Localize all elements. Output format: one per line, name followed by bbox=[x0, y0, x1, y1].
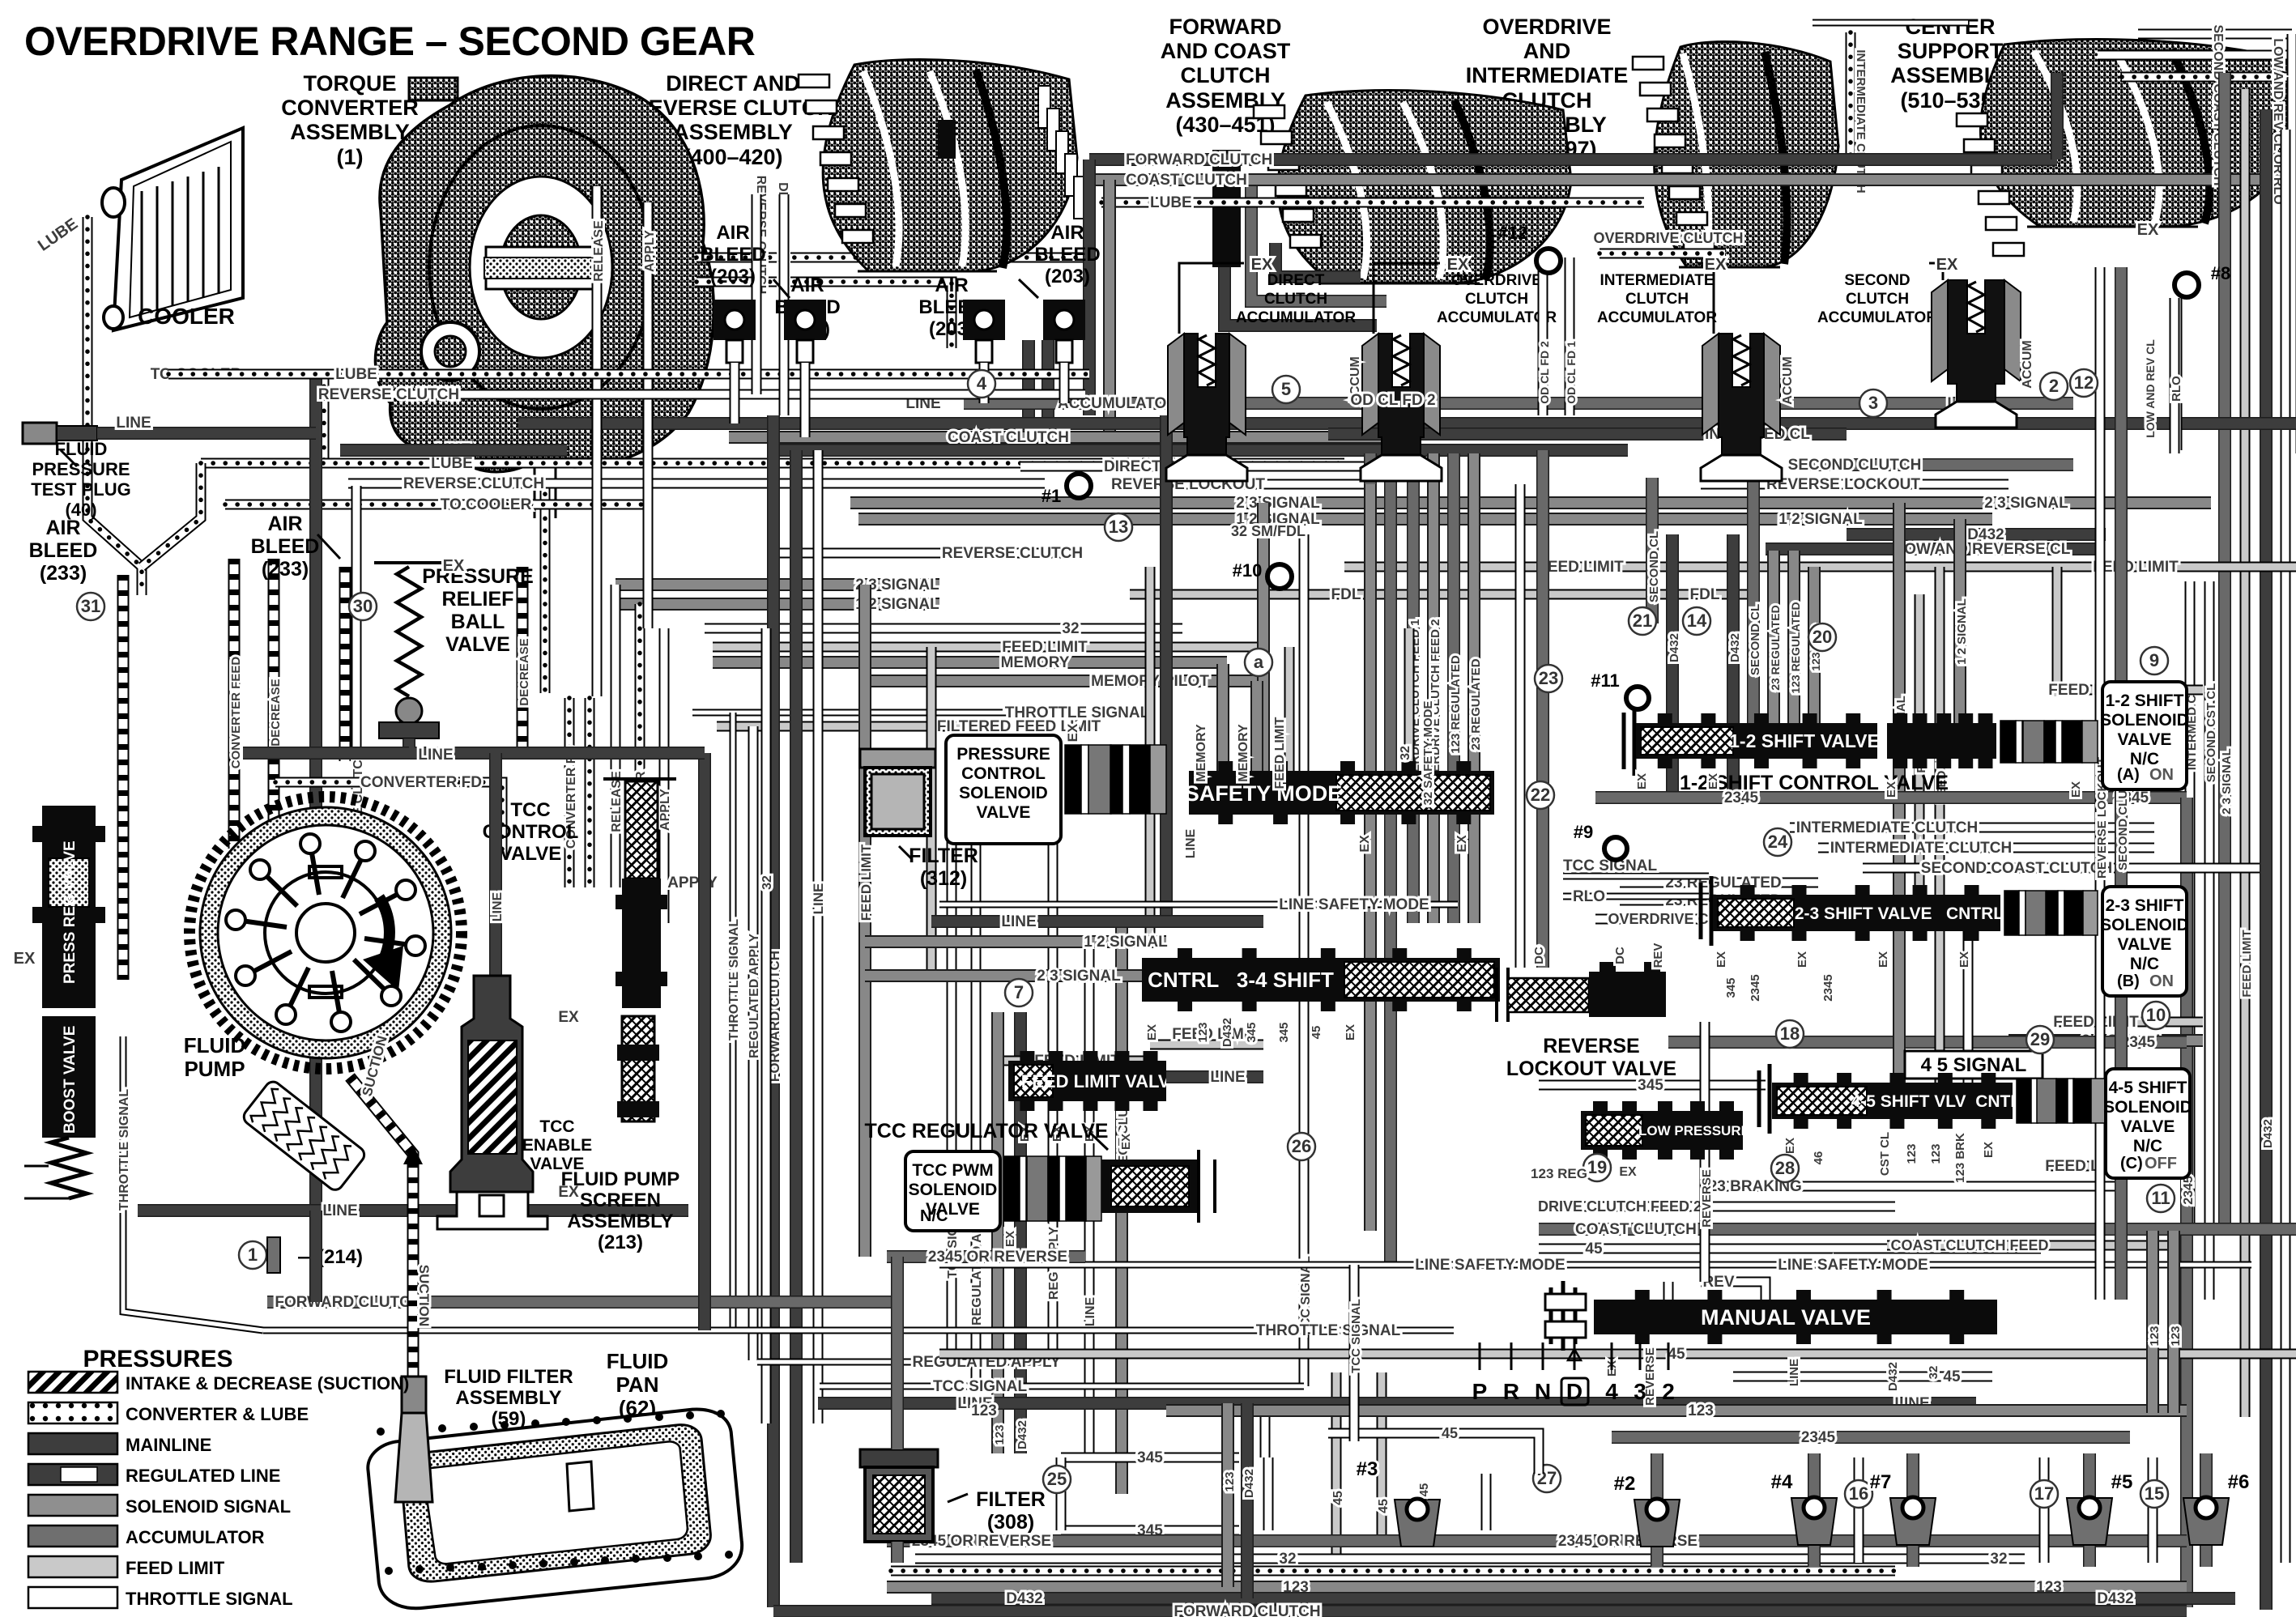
svg-text:123 REGULATED: 123 REGULATED bbox=[1449, 655, 1463, 754]
svg-text:18: 18 bbox=[1780, 1023, 1800, 1044]
svg-text:OVERDRIVE CLUTCH: OVERDRIVE CLUTCH bbox=[1593, 230, 1743, 246]
svg-text:EX: EX bbox=[1065, 723, 1080, 742]
svg-text:THROTTLE SIGNAL: THROTTLE SIGNAL bbox=[117, 1089, 131, 1211]
svg-text:(1): (1) bbox=[337, 145, 364, 169]
svg-text:FEED LIMIT: FEED LIMIT bbox=[1538, 559, 1624, 576]
svg-text:OVERDRIVE: OVERDRIVE bbox=[1482, 15, 1611, 39]
svg-text:VALVE: VALVE bbox=[2121, 1117, 2175, 1136]
svg-text:3: 3 bbox=[1634, 1379, 1646, 1404]
svg-text:EX: EX bbox=[2069, 781, 2083, 798]
svg-text:BLEED: BLEED bbox=[251, 535, 320, 558]
svg-text:EX: EX bbox=[1119, 1134, 1133, 1150]
svg-text:45: 45 bbox=[1417, 1483, 1431, 1497]
svg-text:30: 30 bbox=[353, 596, 373, 616]
svg-text:SECOND COAST CLUTCH: SECOND COAST CLUTCH bbox=[1921, 860, 2112, 877]
svg-text:32 SM/FDL: 32 SM/FDL bbox=[1231, 523, 1306, 539]
svg-text:EX: EX bbox=[1619, 1165, 1637, 1179]
svg-text:OD CL FD 1: OD CL FD 1 bbox=[1565, 341, 1578, 404]
svg-text:345: 345 bbox=[1724, 977, 1738, 998]
svg-text:FLUID: FLUID bbox=[607, 1349, 669, 1373]
svg-text:COAST CLUTCH: COAST CLUTCH bbox=[1126, 172, 1247, 189]
svg-text:FEED LIMIT VALVE: FEED LIMIT VALVE bbox=[1021, 1071, 1182, 1091]
svg-text:SUPPORT: SUPPORT bbox=[1898, 39, 2004, 63]
svg-text:TCC: TCC bbox=[510, 799, 550, 821]
svg-text:(B): (B) bbox=[2117, 972, 2140, 990]
svg-text:FORWARD CLUTCH: FORWARD CLUTCH bbox=[275, 1294, 421, 1311]
svg-text:DIRECT AND: DIRECT AND bbox=[666, 71, 800, 96]
svg-text:(312): (312) bbox=[920, 867, 967, 890]
svg-text:PRESSURE: PRESSURE bbox=[422, 565, 534, 588]
svg-text:BOOST VALVE: BOOST VALVE bbox=[62, 1026, 79, 1134]
svg-text:EX: EX bbox=[443, 557, 465, 575]
svg-text:FEED LIMIT: FEED LIMIT bbox=[126, 1558, 225, 1578]
svg-text:123: 123 bbox=[1688, 1402, 1714, 1419]
svg-text:(203): (203) bbox=[1045, 266, 1090, 287]
svg-text:5: 5 bbox=[1281, 379, 1291, 399]
svg-text:#8: #8 bbox=[2211, 263, 2230, 283]
svg-text:CONTROL: CONTROL bbox=[961, 764, 1046, 783]
svg-text:PRESSURE: PRESSURE bbox=[956, 745, 1050, 764]
svg-text:26: 26 bbox=[1292, 1136, 1311, 1156]
svg-text:SOLENOID: SOLENOID bbox=[2100, 711, 2189, 730]
svg-text:LINE: LINE bbox=[1184, 828, 1198, 858]
svg-text:OD CL FD 2: OD CL FD 2 bbox=[1350, 392, 1435, 409]
svg-text:45: 45 bbox=[1310, 1026, 1323, 1040]
svg-text:INTAKE & DECREASE (SUCTION): INTAKE & DECREASE (SUCTION) bbox=[126, 1373, 409, 1394]
svg-text:SOLENOID: SOLENOID bbox=[909, 1181, 998, 1199]
svg-text:EX: EX bbox=[558, 1009, 579, 1026]
svg-text:ACCUMULATOR: ACCUMULATOR bbox=[126, 1527, 265, 1547]
svg-text:#1: #1 bbox=[1042, 486, 1061, 506]
svg-text:EX: EX bbox=[1885, 781, 1898, 798]
svg-text:AIR: AIR bbox=[790, 274, 824, 296]
svg-text:INTERMEDIATE CLUTCH: INTERMEDIATE CLUTCH bbox=[1854, 49, 1868, 193]
svg-text:VALVE: VALVE bbox=[500, 843, 561, 865]
svg-text:LINE: LINE bbox=[491, 891, 505, 921]
svg-text:R: R bbox=[1503, 1379, 1519, 1404]
svg-text:TEST PLUG: TEST PLUG bbox=[31, 479, 130, 500]
svg-text:32: 32 bbox=[1279, 1551, 1296, 1568]
svg-text:13: 13 bbox=[1109, 517, 1128, 537]
svg-text:24: 24 bbox=[1768, 832, 1788, 852]
svg-text:D432: D432 bbox=[1016, 1420, 1029, 1449]
svg-text:DIRECT: DIRECT bbox=[1267, 272, 1325, 289]
svg-text:SOLENOID: SOLENOID bbox=[2103, 1098, 2192, 1117]
svg-text:32: 32 bbox=[760, 875, 774, 890]
svg-text:MAINLINE: MAINLINE bbox=[126, 1435, 211, 1455]
svg-text:OFF: OFF bbox=[2145, 1155, 2177, 1172]
svg-text:COAST CLUTCH: COAST CLUTCH bbox=[1575, 1221, 1697, 1238]
svg-text:#6: #6 bbox=[2228, 1471, 2250, 1493]
svg-text:FLUID PUMP: FLUID PUMP bbox=[561, 1168, 680, 1190]
svg-text:VALVE: VALVE bbox=[445, 633, 510, 656]
svg-text:45: 45 bbox=[1442, 1425, 1458, 1441]
svg-text:TCC SIGNAL: TCC SIGNAL bbox=[1349, 1299, 1363, 1373]
svg-text:D432: D432 bbox=[2097, 1590, 2133, 1607]
svg-text:LINE: LINE bbox=[1210, 1069, 1245, 1086]
svg-text:20: 20 bbox=[1813, 627, 1832, 647]
svg-text:SECOND CST CL: SECOND CST CL bbox=[2204, 683, 2218, 783]
svg-text:#10: #10 bbox=[1233, 560, 1263, 581]
svg-text:APPLY: APPLY bbox=[658, 789, 672, 831]
svg-text:4: 4 bbox=[977, 373, 987, 394]
svg-text:PAN: PAN bbox=[616, 1372, 659, 1397]
svg-text:2345: 2345 bbox=[1821, 974, 1835, 1001]
svg-text:ACCUMULATOR: ACCUMULATOR bbox=[1597, 309, 1717, 326]
svg-text:OVERDRIVE RANGE – SECOND GEAR: OVERDRIVE RANGE – SECOND GEAR bbox=[24, 19, 756, 64]
svg-text:(213): (213) bbox=[598, 1232, 643, 1253]
svg-text:(400–420): (400–420) bbox=[683, 145, 782, 169]
svg-text:EX: EX bbox=[1706, 773, 1720, 789]
svg-text:D432: D432 bbox=[1242, 1469, 1256, 1498]
svg-text:LINE: LINE bbox=[1787, 1359, 1801, 1386]
svg-text:FLUID FILTER: FLUID FILTER bbox=[444, 1366, 573, 1388]
svg-text:123 REG: 123 REG bbox=[1531, 1166, 1587, 1181]
svg-text:19: 19 bbox=[1587, 1157, 1607, 1177]
svg-text:2 3 SIGNAL: 2 3 SIGNAL bbox=[2220, 748, 2234, 815]
svg-text:ACCUMULATOR: ACCUMULATOR bbox=[1817, 309, 1937, 326]
svg-text:FDL: FDL bbox=[1690, 586, 1720, 603]
svg-text:2: 2 bbox=[2049, 376, 2059, 396]
svg-text:(C): (C) bbox=[2120, 1155, 2143, 1172]
svg-text:AIR: AIR bbox=[267, 513, 302, 535]
svg-text:2345: 2345 bbox=[1749, 974, 1762, 1001]
svg-text:123: 123 bbox=[1196, 1022, 1210, 1042]
svg-text:P: P bbox=[1472, 1379, 1488, 1404]
svg-text:CONVERTER FEED: CONVERTER FEED bbox=[229, 657, 243, 769]
svg-text:CONVERTER FD: CONVERTER FD bbox=[360, 774, 482, 791]
svg-text:ASSEMBLY: ASSEMBLY bbox=[455, 1387, 561, 1409]
svg-text:D432: D432 bbox=[1220, 1018, 1234, 1047]
svg-text:2345 OR REVERSE: 2345 OR REVERSE bbox=[928, 1249, 1067, 1266]
svg-text:RLO: RLO bbox=[2170, 376, 2183, 402]
svg-text:EX: EX bbox=[1957, 951, 1971, 968]
svg-text:LOW AND REVERSE CL: LOW AND REVERSE CL bbox=[1895, 541, 2071, 558]
svg-text:VALVE: VALVE bbox=[2118, 730, 2172, 749]
svg-text:TCC SIGNAL: TCC SIGNAL bbox=[933, 1378, 1028, 1395]
svg-text:EX: EX bbox=[2137, 221, 2159, 239]
svg-text:FEED LIMIT: FEED LIMIT bbox=[858, 844, 874, 921]
svg-text:15: 15 bbox=[2145, 1483, 2164, 1504]
svg-text:14: 14 bbox=[1687, 611, 1707, 631]
svg-text:SCREEN: SCREEN bbox=[580, 1189, 661, 1211]
svg-text:28: 28 bbox=[1775, 1158, 1795, 1178]
svg-text:SECOND: SECOND bbox=[1844, 272, 1910, 289]
svg-text:32: 32 bbox=[1062, 620, 1079, 637]
svg-text:2-3 SHIFT: 2-3 SHIFT bbox=[2106, 896, 2184, 915]
svg-text:COOLER: COOLER bbox=[138, 304, 235, 329]
svg-text:#5: #5 bbox=[2111, 1471, 2133, 1493]
svg-text:REGULATED APPLY: REGULATED APPLY bbox=[748, 934, 761, 1058]
svg-text:2 3 SIGNAL: 2 3 SIGNAL bbox=[1984, 495, 2068, 512]
svg-text:OVERDRIVE: OVERDRIVE bbox=[1451, 272, 1542, 289]
svg-text:ACCUM: ACCUM bbox=[2021, 340, 2034, 389]
svg-text:EX: EX bbox=[1783, 1138, 1797, 1154]
svg-text:2 3 SIGNAL: 2 3 SIGNAL bbox=[1037, 968, 1121, 985]
svg-text:CENTER: CENTER bbox=[1905, 15, 1995, 39]
svg-text:#9: #9 bbox=[1574, 822, 1593, 842]
svg-text:VALVE: VALVE bbox=[977, 803, 1031, 822]
svg-text:1 2 SIGNAL: 1 2 SIGNAL bbox=[1955, 598, 1969, 665]
svg-text:RELIEF: RELIEF bbox=[442, 588, 514, 611]
svg-text:DECREASE: DECREASE bbox=[518, 638, 531, 705]
svg-text:LUBE: LUBE bbox=[1150, 194, 1192, 211]
svg-text:4 5 SIGNAL: 4 5 SIGNAL bbox=[1921, 1054, 2027, 1076]
svg-text:2345 OR REVERSE: 2345 OR REVERSE bbox=[1558, 1533, 1698, 1550]
svg-text:FEED LIMIT: FEED LIMIT bbox=[1273, 717, 1287, 789]
svg-text:#3: #3 bbox=[1357, 1458, 1378, 1480]
svg-text:AIR: AIR bbox=[1050, 222, 1084, 244]
svg-text:FEED LIMIT: FEED LIMIT bbox=[2240, 930, 2254, 997]
svg-text:(A): (A) bbox=[2117, 766, 2140, 784]
svg-text:(233): (233) bbox=[40, 562, 87, 585]
svg-text:ENABLE: ENABLE bbox=[522, 1136, 592, 1155]
svg-text:RELEASE: RELEASE bbox=[592, 220, 606, 282]
svg-text:INTERMEDIATE: INTERMEDIATE bbox=[1600, 272, 1714, 289]
svg-text:N/C: N/C bbox=[920, 1207, 948, 1225]
svg-text:SUCTION: SUCTION bbox=[416, 1265, 432, 1327]
svg-text:EX: EX bbox=[1145, 1024, 1159, 1040]
svg-text:EX: EX bbox=[1876, 951, 1890, 968]
svg-text:45: 45 bbox=[1377, 1499, 1391, 1513]
svg-text:2: 2 bbox=[1662, 1379, 1675, 1404]
svg-text:LOCKOUT VALVE: LOCKOUT VALVE bbox=[1506, 1057, 1676, 1080]
svg-text:FORWARD: FORWARD bbox=[1169, 15, 1282, 39]
svg-text:SOLENOID: SOLENOID bbox=[2100, 916, 2189, 934]
svg-text:TO COOLER: TO COOLER bbox=[441, 496, 532, 513]
svg-text:1-2 SHIFT VALVE: 1-2 SHIFT VALVE bbox=[1729, 730, 1880, 751]
svg-text:CNTRL 3-4 SHIFT: CNTRL 3-4 SHIFT bbox=[1148, 968, 1334, 992]
svg-text:EX: EX bbox=[1936, 256, 1958, 274]
svg-text:CONVERTER & LUBE: CONVERTER & LUBE bbox=[126, 1404, 309, 1424]
svg-text:LOW PRESSURE: LOW PRESSURE bbox=[1638, 1123, 1750, 1138]
svg-text:FILTER: FILTER bbox=[909, 845, 978, 867]
svg-text:INTERMEDIATE: INTERMEDIATE bbox=[1466, 63, 1629, 87]
svg-text:123: 123 bbox=[2169, 1326, 2183, 1346]
svg-text:12: 12 bbox=[2074, 372, 2094, 393]
svg-text:CLUTCH: CLUTCH bbox=[1625, 291, 1689, 308]
svg-text:REVERSE CLUTCH: REVERSE CLUTCH bbox=[942, 545, 1083, 562]
svg-text:FEED LIMIT: FEED LIMIT bbox=[2093, 559, 2179, 576]
svg-text:D432: D432 bbox=[1886, 1362, 1900, 1391]
svg-text:SECOND CL: SECOND CL bbox=[1749, 604, 1762, 675]
svg-text:AIR: AIR bbox=[716, 222, 749, 244]
svg-text:DECREASE: DECREASE bbox=[269, 679, 283, 746]
svg-text:FORWARD CLUTCH: FORWARD CLUTCH bbox=[1126, 151, 1272, 168]
svg-text:1 2 SIGNAL: 1 2 SIGNAL bbox=[1084, 934, 1168, 951]
svg-text:OD CL FD 2: OD CL FD 2 bbox=[1538, 341, 1551, 404]
svg-text:4: 4 bbox=[1605, 1379, 1618, 1404]
svg-text:LINE SAFETY MODE: LINE SAFETY MODE bbox=[1778, 1257, 1928, 1274]
svg-text:123: 123 bbox=[971, 1402, 997, 1419]
svg-text:D432: D432 bbox=[1006, 1590, 1042, 1607]
svg-text:PRESS REG VALVE: PRESS REG VALVE bbox=[62, 840, 79, 984]
svg-text:25: 25 bbox=[1047, 1469, 1067, 1489]
svg-text:DC: DC bbox=[1613, 947, 1627, 964]
svg-text:(308): (308) bbox=[987, 1511, 1034, 1534]
svg-text:THROTTLE SIGNAL: THROTTLE SIGNAL bbox=[727, 919, 741, 1040]
svg-text:LINE: LINE bbox=[811, 883, 826, 915]
svg-text:FORWARD CLUTCH: FORWARD CLUTCH bbox=[1174, 1603, 1320, 1617]
svg-text:2 3 SIGNAL: 2 3 SIGNAL bbox=[1236, 495, 1320, 512]
svg-text:EX: EX bbox=[1705, 256, 1727, 274]
svg-text:32: 32 bbox=[1990, 1551, 2007, 1568]
svg-text:REGULATED LINE: REGULATED LINE bbox=[126, 1466, 280, 1486]
svg-text:MANUAL VALVE: MANUAL VALVE bbox=[1701, 1305, 1871, 1330]
svg-text:45: 45 bbox=[1943, 1368, 1961, 1385]
svg-text:FLUID: FLUID bbox=[55, 439, 108, 459]
svg-text:345: 345 bbox=[1245, 1022, 1259, 1042]
svg-text:3: 3 bbox=[1868, 393, 1878, 413]
svg-text:ASSEMBLY: ASSEMBLY bbox=[567, 1211, 673, 1232]
svg-text:TCC REGULATOR VALVE: TCC REGULATOR VALVE bbox=[865, 1120, 1109, 1143]
svg-text:LINE: LINE bbox=[1001, 913, 1036, 930]
svg-text:LUBE: LUBE bbox=[335, 366, 377, 383]
svg-text:123: 123 bbox=[1905, 1143, 1919, 1164]
svg-text:PRESSURES: PRESSURES bbox=[83, 1346, 232, 1372]
svg-text:123 REGULATED: 123 REGULATED bbox=[1789, 602, 1802, 693]
svg-text:COAST CLUTCH: COAST CLUTCH bbox=[948, 429, 1069, 446]
svg-text:ASSEMBLY: ASSEMBLY bbox=[290, 120, 410, 144]
svg-text:EX: EX bbox=[1344, 1024, 1357, 1040]
svg-text:31: 31 bbox=[81, 596, 100, 616]
svg-text:REV: REV bbox=[1651, 943, 1665, 968]
svg-text:FILTER: FILTER bbox=[976, 1488, 1046, 1511]
svg-text:ACCUMULATOR: ACCUMULATOR bbox=[1236, 309, 1356, 326]
svg-text:123: 123 bbox=[1929, 1143, 1943, 1164]
svg-text:CST CL: CST CL bbox=[1878, 1132, 1892, 1176]
svg-text:THROTTLE SIGNAL: THROTTLE SIGNAL bbox=[1256, 1322, 1401, 1339]
svg-text:2345: 2345 bbox=[2182, 1176, 2196, 1205]
svg-text:#11: #11 bbox=[1591, 670, 1620, 691]
svg-text:46: 46 bbox=[1812, 1151, 1825, 1165]
svg-text:TCC: TCC bbox=[539, 1117, 574, 1136]
svg-text:AIR: AIR bbox=[935, 274, 968, 296]
svg-text:MEMORY: MEMORY bbox=[1237, 724, 1250, 782]
svg-text:TCC PWM: TCC PWM bbox=[912, 1161, 993, 1180]
svg-text:#4: #4 bbox=[1771, 1471, 1793, 1493]
svg-text:LINE: LINE bbox=[418, 747, 453, 764]
svg-text:BLEED: BLEED bbox=[1034, 244, 1100, 266]
svg-text:EX: EX bbox=[1251, 256, 1273, 274]
svg-text:23 REGULATED: 23 REGULATED bbox=[1469, 658, 1483, 750]
svg-text:1 2 SIGNAL: 1 2 SIGNAL bbox=[1778, 511, 1863, 528]
svg-text:CLUTCH: CLUTCH bbox=[1264, 291, 1327, 308]
svg-text:DRIVE CLUTCH FEED 2: DRIVE CLUTCH FEED 2 bbox=[1538, 1198, 1702, 1215]
svg-text:32: 32 bbox=[1927, 1366, 1940, 1380]
svg-text:EX: EX bbox=[1003, 1231, 1017, 1247]
svg-text:REVERSE CLUTCH: REVERSE CLUTCH bbox=[318, 386, 459, 403]
svg-text:EX: EX bbox=[1795, 951, 1809, 968]
svg-text:SAFETY MODE: SAFETY MODE bbox=[1185, 781, 1343, 806]
svg-text:LINE SAFETY MODE: LINE SAFETY MODE bbox=[1415, 1257, 1565, 1274]
svg-text:N/C: N/C bbox=[2130, 955, 2159, 973]
svg-text:4-5 SHIFT: 4-5 SHIFT bbox=[2109, 1079, 2187, 1097]
svg-text:SOLENOID: SOLENOID bbox=[959, 784, 1048, 802]
svg-text:MEMORY: MEMORY bbox=[1001, 654, 1070, 671]
svg-text:N/C: N/C bbox=[2133, 1137, 2162, 1155]
svg-text:BLEED: BLEED bbox=[700, 244, 765, 266]
svg-text:VALVE: VALVE bbox=[2118, 935, 2172, 954]
svg-text:23 REGULATED: 23 REGULATED bbox=[1769, 605, 1782, 691]
svg-text:(233): (233) bbox=[262, 558, 309, 581]
svg-text:9: 9 bbox=[2149, 650, 2159, 670]
svg-text:CLUTCH: CLUTCH bbox=[1846, 291, 1909, 308]
svg-text:EX: EX bbox=[1358, 835, 1372, 853]
svg-text:23: 23 bbox=[1539, 668, 1558, 688]
svg-text:PRESSURE: PRESSURE bbox=[32, 459, 130, 479]
svg-text:MEMORY: MEMORY bbox=[1195, 724, 1208, 782]
svg-text:ACCUM: ACCUM bbox=[1781, 356, 1795, 405]
svg-text:SOLENOID SIGNAL: SOLENOID SIGNAL bbox=[126, 1496, 291, 1517]
svg-text:AIR: AIR bbox=[45, 517, 80, 539]
svg-text:CLUTCH: CLUTCH bbox=[1181, 63, 1271, 87]
svg-text:21: 21 bbox=[1633, 611, 1652, 631]
svg-text:2345: 2345 bbox=[1801, 1429, 1836, 1446]
svg-text:345: 345 bbox=[1277, 1022, 1291, 1042]
svg-text:123: 123 bbox=[2148, 1326, 2162, 1346]
svg-text:1-2 SHIFT: 1-2 SHIFT bbox=[2106, 691, 2184, 710]
svg-text:16: 16 bbox=[1849, 1483, 1868, 1504]
svg-text:4-5 SHIFT VLV CNTRL: 4-5 SHIFT VLV CNTRL bbox=[1851, 1092, 2034, 1111]
svg-text:AND COAST: AND COAST bbox=[1161, 39, 1291, 63]
svg-text:D432: D432 bbox=[1728, 633, 1742, 662]
svg-text:PUMP: PUMP bbox=[184, 1057, 245, 1081]
svg-text:APPLY: APPLY bbox=[643, 230, 657, 272]
svg-text:ON: ON bbox=[2149, 766, 2174, 784]
svg-text:#2: #2 bbox=[1614, 1473, 1636, 1495]
svg-text:#12: #12 bbox=[1498, 223, 1528, 243]
svg-text:(203): (203) bbox=[710, 266, 756, 287]
svg-text:D: D bbox=[1566, 1379, 1582, 1404]
svg-text:#7: #7 bbox=[1870, 1471, 1892, 1493]
svg-text:REVERSE: REVERSE bbox=[1700, 1169, 1714, 1228]
svg-text:LINE: LINE bbox=[1084, 1296, 1097, 1326]
svg-text:—(214): —(214) bbox=[298, 1246, 363, 1268]
svg-text:LINE: LINE bbox=[116, 415, 151, 432]
svg-text:CONVERTER: CONVERTER bbox=[281, 96, 419, 120]
svg-text:AND: AND bbox=[1523, 39, 1571, 63]
svg-text:EX: EX bbox=[14, 950, 36, 968]
svg-text:D432: D432 bbox=[1668, 633, 1681, 662]
svg-text:SECOND CL: SECOND CL bbox=[1647, 531, 1661, 602]
svg-text:DC: DC bbox=[1532, 947, 1546, 964]
svg-text:N: N bbox=[1535, 1379, 1551, 1404]
svg-text:2-3 SHIFT VALVE CNTRL: 2-3 SHIFT VALVE CNTRL bbox=[1795, 904, 2004, 923]
svg-text:123: 123 bbox=[1223, 1471, 1237, 1491]
svg-text:CLUTCH: CLUTCH bbox=[1465, 291, 1528, 308]
svg-text:REVERSE CLUTCH: REVERSE CLUTCH bbox=[403, 475, 544, 492]
svg-text:32: 32 bbox=[1399, 746, 1412, 760]
svg-text:11: 11 bbox=[2151, 1188, 2170, 1208]
svg-text:29: 29 bbox=[2030, 1029, 2050, 1049]
svg-text:BLEED: BLEED bbox=[29, 539, 98, 562]
svg-text:BALL: BALL bbox=[451, 611, 505, 633]
svg-text:REVERSE LOCKOUT: REVERSE LOCKOUT bbox=[1766, 476, 1920, 493]
svg-text:INTERMEDIATE CLUTCH: INTERMEDIATE CLUTCH bbox=[1830, 840, 2012, 857]
svg-text:THROTTLE SIGNAL: THROTTLE SIGNAL bbox=[126, 1589, 293, 1609]
svg-text:45: 45 bbox=[1668, 1346, 1685, 1363]
svg-text:INTERMEDIATE CLUTCH: INTERMEDIATE CLUTCH bbox=[1796, 819, 1978, 836]
svg-text:EX: EX bbox=[1715, 951, 1728, 968]
svg-text:ON: ON bbox=[2149, 972, 2174, 990]
svg-text:RLO: RLO bbox=[1573, 888, 1605, 905]
svg-text:LOW AND REV CL: LOW AND REV CL bbox=[2144, 339, 2157, 438]
svg-text:123: 123 bbox=[993, 1424, 1007, 1445]
svg-text:EX: EX bbox=[1455, 835, 1469, 853]
svg-text:1: 1 bbox=[248, 1245, 258, 1265]
svg-text:TORQUE: TORQUE bbox=[303, 71, 396, 96]
